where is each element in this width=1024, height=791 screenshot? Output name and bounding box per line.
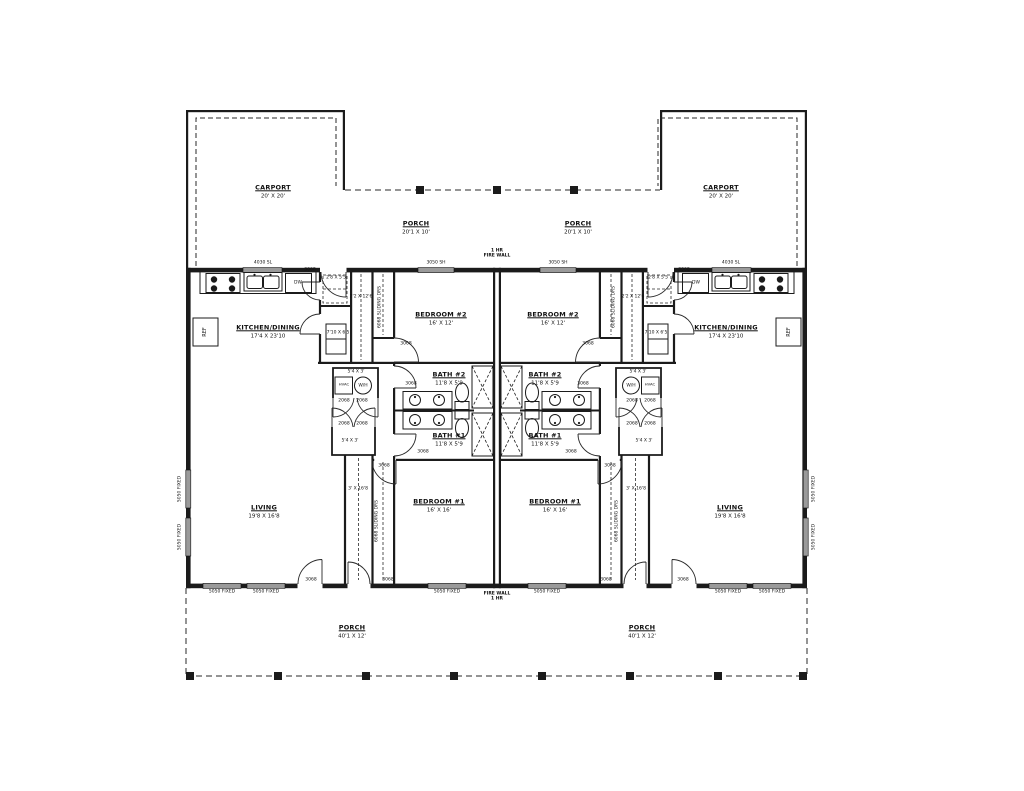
toilet-tank-left — [455, 402, 469, 410]
room-dims: 11'8 X 5'9 — [433, 441, 466, 448]
label-window-5050-vert: 5050 FIXED — [177, 476, 182, 502]
label-carport-left: CARPORT20' X 20' — [255, 184, 291, 199]
room-dims: 11'8 X 5'9 — [529, 441, 562, 448]
label-bedroom1-left: BEDROOM #116' X 16' — [413, 498, 465, 513]
label-chase-dims-left: 2'2 X 12'6 — [350, 294, 373, 299]
room-dims: 17'4 X 23'10 — [236, 333, 300, 340]
label-porch-upper-right: PORCH20'1 X 10' — [564, 220, 592, 235]
label-hall-dims-left: 3' X 16'8 — [348, 486, 368, 491]
label-sliding-doors-bd1-right: 6068 SLIDING DRS — [614, 500, 619, 542]
room-name: BATH #2 — [529, 371, 562, 379]
label-water-heater-right: W/H — [626, 383, 635, 388]
label-window-5050: 5050 FIXED — [715, 589, 741, 594]
label-water-heater-left: W/H — [358, 383, 367, 388]
stove-burners-right — [759, 276, 783, 291]
room-name: BATH #1 — [433, 432, 466, 440]
firewall-line2: 1 HR — [484, 597, 511, 602]
room-dims: 20'1 X 10' — [402, 229, 430, 236]
label-closet-door: 2068 — [644, 398, 655, 403]
label-door-bd2-left: 3068 — [400, 341, 411, 346]
label-bedroom1-right: BEDROOM #116' X 16' — [529, 498, 581, 513]
fire-wall — [493, 268, 501, 588]
label-window-5050: 5050 FIXED — [253, 589, 279, 594]
label-door-bath1-right: 3068 — [565, 449, 576, 454]
room-name: BEDROOM #1 — [413, 498, 465, 506]
room-dims: 16' X 16' — [529, 507, 581, 514]
label-utility-dims-right: 7'10 X 6'5 — [645, 330, 668, 335]
label-dishwasher-right: DW — [692, 280, 700, 285]
label-door-bd2-right: 3068 — [582, 341, 593, 346]
label-window-5050: 5050 FIXED — [434, 589, 460, 594]
toilet-tank-right — [525, 402, 539, 410]
label-kitchen-right: KITCHEN/DINING17'4 X 23'10 — [694, 324, 758, 339]
room-dims: 20' X 20' — [255, 193, 291, 200]
room-name: PORCH — [338, 624, 366, 632]
room-name: CARPORT — [703, 184, 739, 192]
label-bath2-left: BATH #211'8 X 5'9 — [433, 371, 466, 386]
doors-left — [298, 272, 419, 584]
label-sliding-doors-bd2-right: 6068 SLIDING DRS — [611, 286, 616, 328]
label-dishwasher-left: DW — [294, 280, 302, 285]
label-window-5050-vert: 5050 FIXED — [811, 476, 816, 502]
room-name: LIVING — [714, 504, 745, 512]
room-dims: 16' X 12' — [415, 320, 467, 327]
label-window-5050-vert: 5050 FIXED — [177, 524, 182, 550]
room-dims: 20'1 X 10' — [564, 229, 592, 236]
label-porch-lower-right: PORCH40'1 X 12' — [628, 624, 656, 639]
label-firewall-top: 1 HRFIRE WALL — [484, 249, 511, 260]
label-window-5050: 5050 FIXED — [759, 589, 785, 594]
room-name: BEDROOM #2 — [415, 311, 467, 319]
window-symbols — [186, 268, 808, 589]
label-hall-closet-dims-left: 5'4 X 3' — [341, 438, 358, 443]
label-window-3050-left: 3050 SH — [426, 260, 445, 265]
label-bedroom2-left: BEDROOM #216' X 12' — [415, 311, 467, 326]
label-hall-dims-right: 3' X 16'8 — [626, 486, 646, 491]
room-dims: 19'8 X 16'8 — [248, 513, 279, 520]
stove-burners-left — [211, 276, 235, 291]
label-closet-door: 2068 — [338, 421, 349, 426]
label-door-bath1-left: 3068 — [417, 449, 428, 454]
label-refrigerator-left: REF — [202, 327, 208, 337]
label-window-3050-right: 3050 SH — [548, 260, 567, 265]
label-window-5050-vert: 5050 FIXED — [811, 524, 816, 550]
label-firewall-bottom: FIRE WALL1 HR — [484, 592, 511, 603]
room-dims: 40'1 X 12' — [338, 633, 366, 640]
room-dims: 11'8 X 5'9 — [529, 380, 562, 387]
label-door-living-left: 3068 — [305, 577, 316, 582]
room-name: BEDROOM #2 — [527, 311, 579, 319]
room-dims: 17'4 X 23'10 — [694, 333, 758, 340]
label-porch-upper-left: PORCH20'1 X 10' — [402, 220, 430, 235]
room-name: LIVING — [248, 504, 279, 512]
label-door-bd1-right: 3068 — [604, 463, 615, 468]
room-dims: 16' X 12' — [527, 320, 579, 327]
label-living-left: LIVING19'8 X 16'8 — [248, 504, 279, 519]
label-window-5050: 5050 FIXED — [534, 589, 560, 594]
room-name: BEDROOM #1 — [529, 498, 581, 506]
label-window-5050: 5050 FIXED — [209, 589, 235, 594]
label-porch-lower-left: PORCH40'1 X 12' — [338, 624, 366, 639]
label-closet-door: 2068 — [338, 398, 349, 403]
label-pantry-dims-right: 2'8 X 5'5 — [648, 275, 668, 280]
room-name: KITCHEN/DINING — [236, 324, 300, 332]
label-door-entry-right: 3068 — [678, 267, 689, 272]
label-chase-dims-right: 2'2 X 12'6 — [622, 294, 645, 299]
label-wh-closet-dims-left: 5'4 X 3' — [347, 369, 364, 374]
label-bath1-left: BATH #111'8 X 5'9 — [433, 432, 466, 447]
label-door-bath2-left: 3068 — [405, 381, 416, 386]
label-utility-dims-left: 7'10 X 6'5 — [327, 330, 350, 335]
room-name: PORCH — [628, 624, 656, 632]
floor-plan-sheet: CARPORT20' X 20' CARPORT20' X 20' PORCH2… — [0, 0, 1024, 791]
room-name: BATH #2 — [433, 371, 466, 379]
label-door-living-right: 3068 — [677, 577, 688, 582]
room-dims: 40'1 X 12' — [628, 633, 656, 640]
label-bath1-right: BATH #111'8 X 5'9 — [529, 432, 562, 447]
exterior-walls — [186, 268, 807, 588]
label-bath2-right: BATH #211'8 X 5'9 — [529, 371, 562, 386]
label-closet-door: 2068 — [626, 398, 637, 403]
label-refrigerator-right: REF — [786, 327, 792, 337]
label-closet-door: 2068 — [356, 398, 367, 403]
firewall-line2: FIRE WALL — [484, 254, 511, 259]
label-door-hall-right: 3068 — [600, 577, 611, 582]
label-wh-closet-dims-right: 5'4 X 3' — [629, 369, 646, 374]
room-dims: 16' X 16' — [413, 507, 465, 514]
label-door-entry-left: 3068 — [304, 267, 315, 272]
room-name: KITCHEN/DINING — [694, 324, 758, 332]
label-carport-right: CARPORT20' X 20' — [703, 184, 739, 199]
label-sliding-doors-bd2-left: 6068 SLIDING DRS — [377, 286, 382, 328]
doors-right — [576, 272, 697, 584]
label-hvac-right: HVAC — [645, 383, 655, 388]
label-bedroom2-right: BEDROOM #216' X 12' — [527, 311, 579, 326]
interior-walls-left — [318, 272, 494, 584]
label-kitchen-left: KITCHEN/DINING17'4 X 23'10 — [236, 324, 300, 339]
label-door-bath2-right: 3068 — [577, 381, 588, 386]
label-sliding-doors-bd1-left: 6068 SLIDING DRS — [374, 500, 379, 542]
label-closet-door: 2068 — [644, 421, 655, 426]
label-closet-door: 2068 — [356, 421, 367, 426]
upper-porch-edge — [345, 186, 660, 194]
label-window-4030-left: 4030 SL — [254, 260, 272, 265]
room-name: PORCH — [564, 220, 592, 228]
label-living-right: LIVING19'8 X 16'8 — [714, 504, 745, 519]
label-window-4030-right: 4030 SL — [722, 260, 740, 265]
room-name: BATH #1 — [529, 432, 562, 440]
room-dims: 20' X 20' — [703, 193, 739, 200]
label-pantry-dims-left: 2'8 X 5'5 — [326, 275, 346, 280]
label-door-bd1-left: 3068 — [378, 463, 389, 468]
room-name: CARPORT — [255, 184, 291, 192]
label-door-hall-left: 3068 — [382, 577, 393, 582]
label-closet-door: 2068 — [626, 421, 637, 426]
room-dims: 11'8 X 5'9 — [433, 380, 466, 387]
label-hvac-left: HVAC — [339, 383, 349, 388]
room-dims: 19'8 X 16'8 — [714, 513, 745, 520]
label-hall-closet-dims-right: 5'4 X 3' — [635, 438, 652, 443]
floor-plan-drawing — [0, 0, 1024, 791]
door-openings — [298, 267, 697, 588]
room-name: PORCH — [402, 220, 430, 228]
